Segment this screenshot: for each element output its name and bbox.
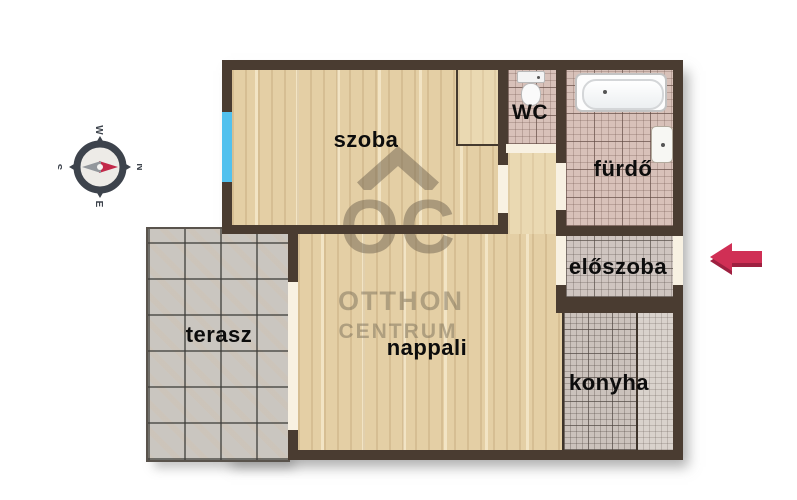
label-szoba: szoba: [334, 127, 399, 153]
compass-icon: N E S W: [58, 118, 142, 218]
entrance-arrow-icon: [706, 238, 766, 282]
label-terasz: terasz: [186, 322, 253, 348]
sink-icon: [651, 126, 673, 163]
wall-nappali-west-upper: [288, 225, 298, 282]
sink-drain: [661, 143, 665, 147]
wall-eloszoba-konyha: [556, 297, 683, 313]
compass-n: N: [134, 163, 142, 170]
wall-szoba-bottom: [222, 225, 508, 234]
nappali-eloszoba-door-gap: [556, 236, 566, 285]
compass-w: W: [93, 125, 104, 135]
wall-furdo-bottom: [556, 226, 683, 236]
wall-bottom: [288, 450, 683, 460]
wall-wc-right: [556, 60, 566, 163]
wall-nappali-west-lower: [288, 430, 298, 460]
bathtub-icon: [575, 73, 667, 112]
wall-eloszoba-west-stub: [556, 285, 566, 297]
floor-plan: OC OTTHON CENTRUM szoba WC fürdő előszob…: [0, 0, 797, 500]
furdo-door-gap: [556, 163, 566, 210]
watermark-otthon: OTTHON: [338, 288, 458, 315]
label-eloszoba: előszoba: [569, 254, 667, 280]
watermark-logo: OC OTTHON CENTRUM: [338, 146, 458, 346]
szoba-window: [222, 112, 232, 182]
konyha-left-line: [562, 313, 564, 450]
wardrobe: [456, 70, 498, 146]
entrance-door-gap: [673, 236, 683, 285]
compass-e: E: [93, 201, 104, 208]
label-furdo: fürdő: [594, 156, 653, 182]
bathtub-drain: [603, 90, 607, 94]
label-wc: WC: [512, 101, 548, 125]
wall-right-upper: [673, 60, 683, 236]
toilet-tank-icon: [517, 71, 545, 83]
bathtub-basin: [582, 79, 664, 110]
toilet-button: [537, 76, 540, 79]
compass-s: S: [58, 164, 63, 171]
hallway-floor: [508, 153, 556, 234]
label-nappali: nappali: [387, 335, 468, 361]
wall-szoba-right-lower: [498, 213, 508, 234]
wc-door-gap: [506, 144, 556, 153]
terrace-door-gap: [288, 282, 298, 430]
label-konyha: konyha: [569, 370, 649, 396]
wall-top: [222, 60, 683, 70]
szoba-door-gap: [498, 165, 508, 213]
